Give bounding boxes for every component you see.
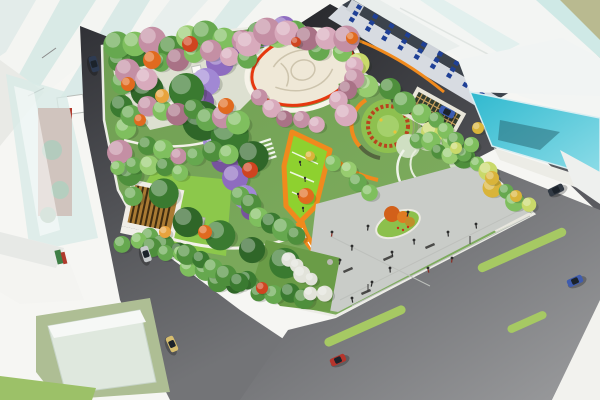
tree-highlight [156, 90, 164, 98]
tree-highlight [257, 283, 264, 290]
person-body [407, 213, 408, 217]
tree-highlight [202, 41, 214, 53]
tree-highlight [336, 105, 348, 117]
tree-highlight [350, 174, 360, 184]
person-head [447, 231, 450, 234]
tree-highlight [126, 158, 135, 167]
tree-highlight [151, 180, 168, 197]
tree-highlight [318, 286, 327, 295]
tree-highlight [220, 145, 231, 156]
tree-highlight [291, 259, 298, 266]
render-canvas [0, 0, 600, 400]
person-head [451, 257, 454, 260]
tree-highlight [274, 219, 287, 232]
tree-highlight [185, 100, 196, 111]
tree-highlight [264, 100, 274, 110]
tree-highlight [330, 92, 340, 102]
tree-highlight [511, 191, 518, 198]
flower-dot [402, 229, 404, 231]
person-head [351, 245, 354, 248]
person-head [371, 281, 374, 284]
tree-highlight [304, 287, 312, 295]
flower-dot [379, 118, 382, 121]
tree-highlight [139, 137, 149, 147]
person-head [389, 267, 392, 270]
tree-highlight [199, 226, 207, 234]
tree-highlight [339, 81, 349, 91]
tree-highlight [243, 163, 252, 172]
tree-highlight [326, 156, 335, 165]
person-head [297, 193, 299, 195]
tree-highlight [411, 133, 420, 142]
tree-highlight [347, 58, 357, 68]
tree-highlight [430, 113, 439, 122]
tree-highlight [115, 237, 124, 246]
tree-highlight [255, 19, 270, 34]
tree-highlight [433, 145, 441, 153]
tree-highlight [242, 195, 253, 206]
tree-highlight [317, 28, 330, 41]
tree-highlight [187, 148, 197, 158]
person-body [428, 269, 429, 273]
tree-highlight [262, 214, 274, 226]
tree-highlight [362, 185, 371, 194]
person-body [339, 261, 340, 265]
tree-highlight [172, 149, 181, 158]
tree-highlight [214, 29, 227, 42]
person-head [413, 239, 416, 242]
tree-highlight [168, 50, 181, 63]
person-body [352, 299, 353, 303]
tree-highlight [175, 208, 192, 225]
tree-highlight [439, 123, 448, 132]
tree-highlight [465, 138, 473, 146]
tree-highlight [224, 166, 238, 180]
tree-highlight [486, 172, 494, 180]
flower-dot [407, 226, 409, 228]
person-head [304, 177, 306, 179]
person-body [371, 283, 372, 287]
tree-highlight [122, 78, 130, 86]
tree-highlight [183, 37, 192, 46]
tree-highlight [105, 33, 120, 48]
tree-highlight [238, 33, 252, 47]
tree-highlight [112, 96, 124, 108]
tree-highlight [157, 159, 167, 169]
tree-highlight [282, 284, 293, 295]
tree-highlight [232, 187, 242, 197]
tree-highlight [194, 252, 203, 261]
tree-highlight [111, 161, 119, 169]
tree-highlight [132, 233, 141, 242]
tree-highlight [451, 143, 458, 150]
tree-highlight [178, 245, 190, 257]
tree-highlight [194, 22, 209, 37]
tree-highlight [347, 33, 354, 40]
tree-highlight [159, 246, 168, 255]
tree-highlight [109, 141, 123, 155]
person-head [302, 207, 304, 209]
tree-highlight [288, 227, 298, 237]
tree-highlight [139, 97, 150, 108]
tree-highlight [217, 266, 229, 278]
tree-highlight [171, 75, 190, 94]
tree-highlight [306, 152, 312, 158]
person-head [475, 223, 478, 226]
aerial-park-rendering [0, 0, 600, 400]
tree-highlight [241, 238, 255, 252]
tree-highlight [125, 187, 136, 198]
tree-highlight [124, 33, 138, 47]
tree-highlight [239, 143, 256, 160]
tree-highlight [413, 104, 424, 115]
tree-highlight [480, 163, 490, 173]
tree-highlight [135, 115, 142, 122]
tree-highlight [231, 274, 241, 284]
person-head [351, 297, 354, 300]
tree-highlight [292, 38, 298, 44]
tree-highlight [144, 52, 154, 62]
tree-highlight [294, 266, 304, 276]
person-head [331, 231, 334, 234]
tree-highlight [306, 273, 313, 280]
tree-highlight [155, 140, 166, 151]
tree-highlight [252, 90, 261, 99]
tree-highlight [282, 253, 290, 261]
tree-highlight [140, 28, 155, 43]
tree-highlight [500, 185, 508, 193]
tree-highlight [205, 260, 216, 271]
tree-highlight [221, 48, 231, 58]
tree-highlight [198, 109, 211, 122]
tree-highlight [160, 227, 167, 234]
tree-highlight [219, 99, 228, 108]
tree-highlight [141, 157, 152, 168]
tree-highlight [168, 104, 180, 116]
circle-core [377, 115, 399, 137]
tree-highlight [117, 60, 131, 74]
tree-highlight [346, 70, 357, 81]
tree-highlight [276, 22, 290, 36]
person-head [339, 259, 342, 262]
person-head [367, 225, 370, 228]
tree-highlight [342, 162, 351, 171]
tree-highlight [122, 106, 134, 118]
tree-highlight [204, 142, 216, 154]
tree-highlight [395, 93, 408, 106]
island-yellow-tree [405, 217, 415, 227]
tree-highlight [310, 117, 319, 126]
tree-highlight [294, 112, 303, 121]
tree-highlight [277, 111, 286, 120]
flower-dot [397, 227, 399, 229]
tree-highlight [250, 208, 261, 219]
tree-highlight [423, 132, 434, 143]
person-head [299, 161, 301, 163]
rock [327, 259, 333, 265]
person-head [407, 211, 410, 214]
person-head [427, 267, 430, 270]
flower-dot [393, 130, 396, 133]
person-body [392, 253, 393, 257]
tree-highlight [173, 165, 182, 174]
tree-highlight [473, 123, 480, 130]
tree-highlight [299, 189, 308, 198]
tree-highlight [137, 69, 149, 81]
tree-highlight [381, 79, 393, 91]
person-head [391, 251, 394, 254]
tree-highlight [448, 133, 457, 142]
